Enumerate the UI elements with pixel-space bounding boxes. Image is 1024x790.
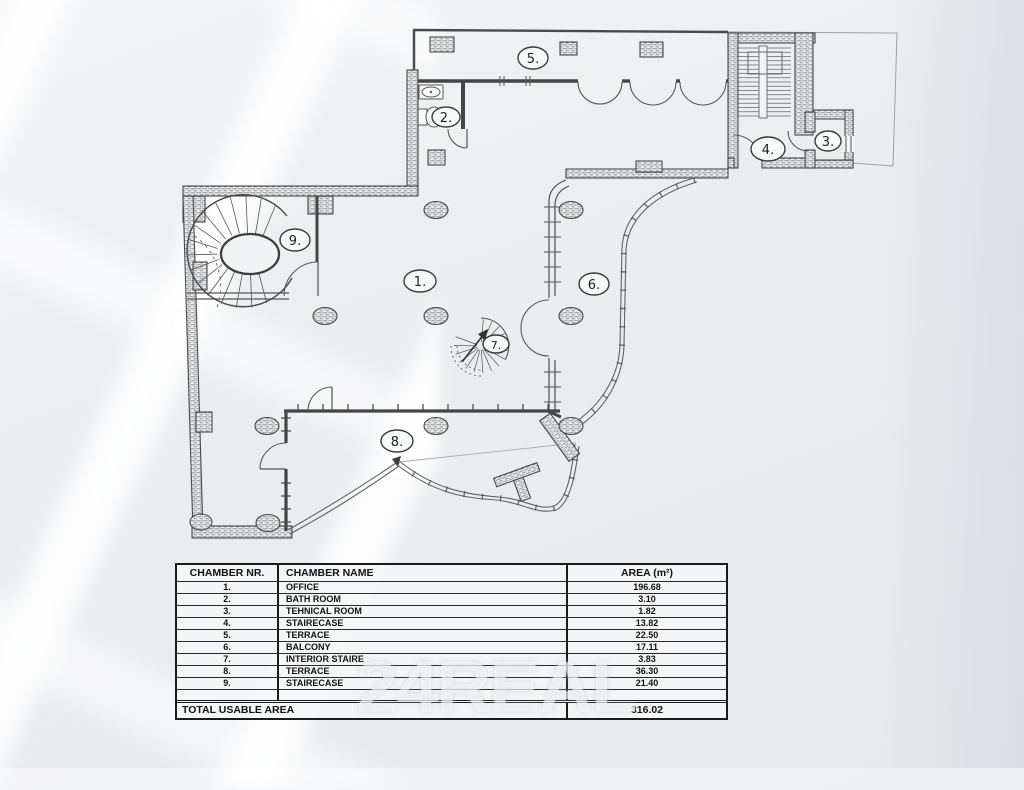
room-label-6: 6. [579,273,609,295]
floor-plan: 5. 2. 3. 4. 9. 1. 6. 7. [0,0,1024,560]
svg-text:5.: 5. [527,52,539,67]
room-label-9: 9. [280,229,310,251]
room-label-4: 4. [751,137,785,161]
col-header-chamber-nr: CHAMBER NR. [177,565,279,581]
column [430,37,454,52]
col-header-area: AREA (m²) [568,565,726,581]
room-label-8: 8. [381,430,413,452]
terrace-8 [260,387,580,534]
svg-text:6.: 6. [588,278,600,293]
room-label-1: 1. [404,270,436,292]
column [636,161,662,172]
table-row: 4.STAIRECASE13.82 [177,617,726,629]
column [640,42,663,57]
balcony-6 [521,161,728,425]
svg-text:1.: 1. [414,275,426,290]
watermark: 24REAL [356,646,635,729]
table-row: 5.TERRACE22.50 [177,629,726,641]
svg-text:3.: 3. [822,135,834,150]
window-mullions [544,207,561,402]
room-label-3: 3. [815,131,841,151]
table-header-row: CHAMBER NR. CHAMBER NAME AREA (m²) [177,565,726,581]
table-row: 1.OFFICE196.68 [177,581,726,593]
svg-text:8.: 8. [391,435,403,450]
table-row: 3.TEHNICAL ROOM1.82 [177,605,726,617]
room-label-7: 7. [483,335,509,353]
svg-text:4.: 4. [762,143,774,158]
table-row: 2.BATH ROOM3.10 [177,593,726,605]
terrace-5 [413,30,730,105]
col-header-chamber-name: CHAMBER NAME [279,565,568,581]
svg-text:7.: 7. [491,339,502,352]
column [428,150,445,165]
office-1-walls [183,70,445,538]
column [560,42,577,55]
svg-text:9.: 9. [289,234,301,249]
room-label-5: 5. [518,47,548,69]
svg-text:2.: 2. [440,111,452,126]
room-label-2: 2. [432,107,460,127]
